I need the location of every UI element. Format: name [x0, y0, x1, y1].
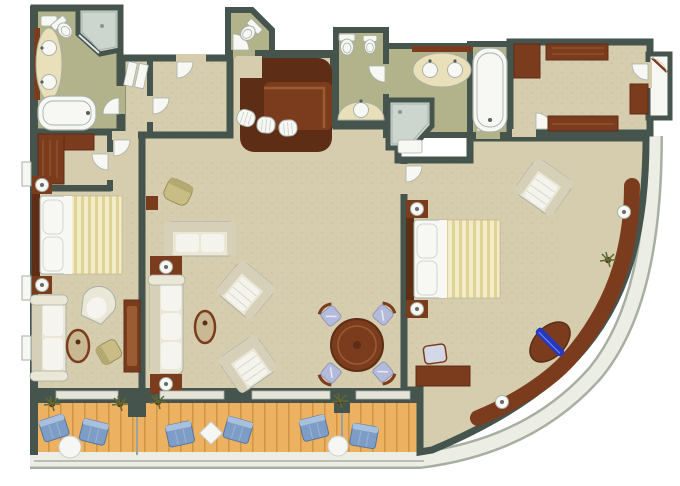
round-table	[59, 436, 81, 458]
sink	[42, 75, 57, 90]
window-tab	[22, 162, 31, 186]
round-table	[328, 436, 348, 456]
tub-faucet	[86, 111, 90, 115]
tub-room	[473, 48, 507, 132]
pillow	[417, 224, 437, 258]
coffee-table	[195, 311, 215, 343]
window-tab	[22, 276, 31, 300]
shower-drain	[100, 24, 104, 28]
nightstand-lamp	[36, 179, 49, 192]
sofa-cushion	[43, 304, 63, 336]
sink	[354, 103, 369, 118]
sofa-cushion	[43, 338, 63, 370]
dining-table-center	[353, 341, 361, 349]
headboard	[32, 194, 40, 276]
console-lamp	[618, 206, 631, 219]
tub-faucet	[488, 118, 492, 122]
bath-mat	[398, 140, 422, 153]
striped-duvet	[446, 220, 500, 298]
wardrobe	[64, 134, 94, 150]
lounge-chair	[165, 421, 195, 448]
loveseat	[164, 222, 236, 256]
coffee-table	[67, 330, 89, 362]
bidet	[363, 36, 377, 54]
striped-duvet	[71, 196, 122, 274]
lounge-chair	[349, 423, 378, 449]
sliding-door	[356, 391, 410, 399]
sliding-door	[56, 391, 118, 399]
nightstand-lamp	[36, 279, 49, 292]
bar-notch	[236, 56, 262, 78]
balcony-railing	[34, 452, 424, 461]
sheet-fold	[64, 196, 72, 274]
sofa-back	[32, 300, 42, 376]
wardrobe	[546, 44, 608, 60]
master-desk	[416, 366, 470, 386]
shower-drain	[398, 110, 402, 114]
vanity-backsplash	[412, 46, 472, 52]
wardrobe	[514, 44, 540, 78]
sliding-door	[252, 391, 330, 399]
master-desk-chair	[423, 344, 447, 365]
table-decor	[203, 321, 208, 326]
table-lamp	[160, 378, 173, 391]
window-tab	[22, 336, 31, 360]
table-decor	[76, 340, 81, 345]
sliding-door	[160, 391, 224, 399]
wardrobe	[630, 84, 648, 114]
faucet	[428, 59, 431, 62]
headboard	[406, 218, 414, 300]
toilet	[339, 34, 355, 55]
side-table	[146, 196, 158, 210]
sofa-arm	[30, 371, 68, 381]
floorplan-image	[0, 0, 680, 486]
table-lamp	[160, 261, 173, 274]
pillow	[43, 200, 63, 234]
floorplan-stage	[0, 0, 680, 486]
pillow	[43, 237, 63, 271]
nightstand-lamp	[411, 203, 424, 216]
sink	[42, 41, 57, 56]
pillow	[417, 261, 437, 295]
dressing-table-top	[127, 306, 137, 366]
sink	[423, 63, 438, 78]
faucet	[359, 99, 362, 102]
nightstand-lamp	[411, 303, 424, 316]
sheet-fold	[439, 220, 447, 298]
left-wall-windows	[22, 162, 31, 360]
faucet	[453, 59, 456, 62]
wet-bar	[235, 56, 332, 152]
sofa-arm	[30, 295, 68, 305]
balcony-partition	[128, 390, 146, 417]
long-sofa	[148, 275, 185, 374]
faucet	[40, 46, 43, 49]
bar-stool	[278, 119, 297, 136]
console-lamp	[496, 396, 509, 409]
faucet	[40, 80, 43, 83]
sink	[448, 63, 463, 78]
bar-stool	[256, 116, 276, 134]
